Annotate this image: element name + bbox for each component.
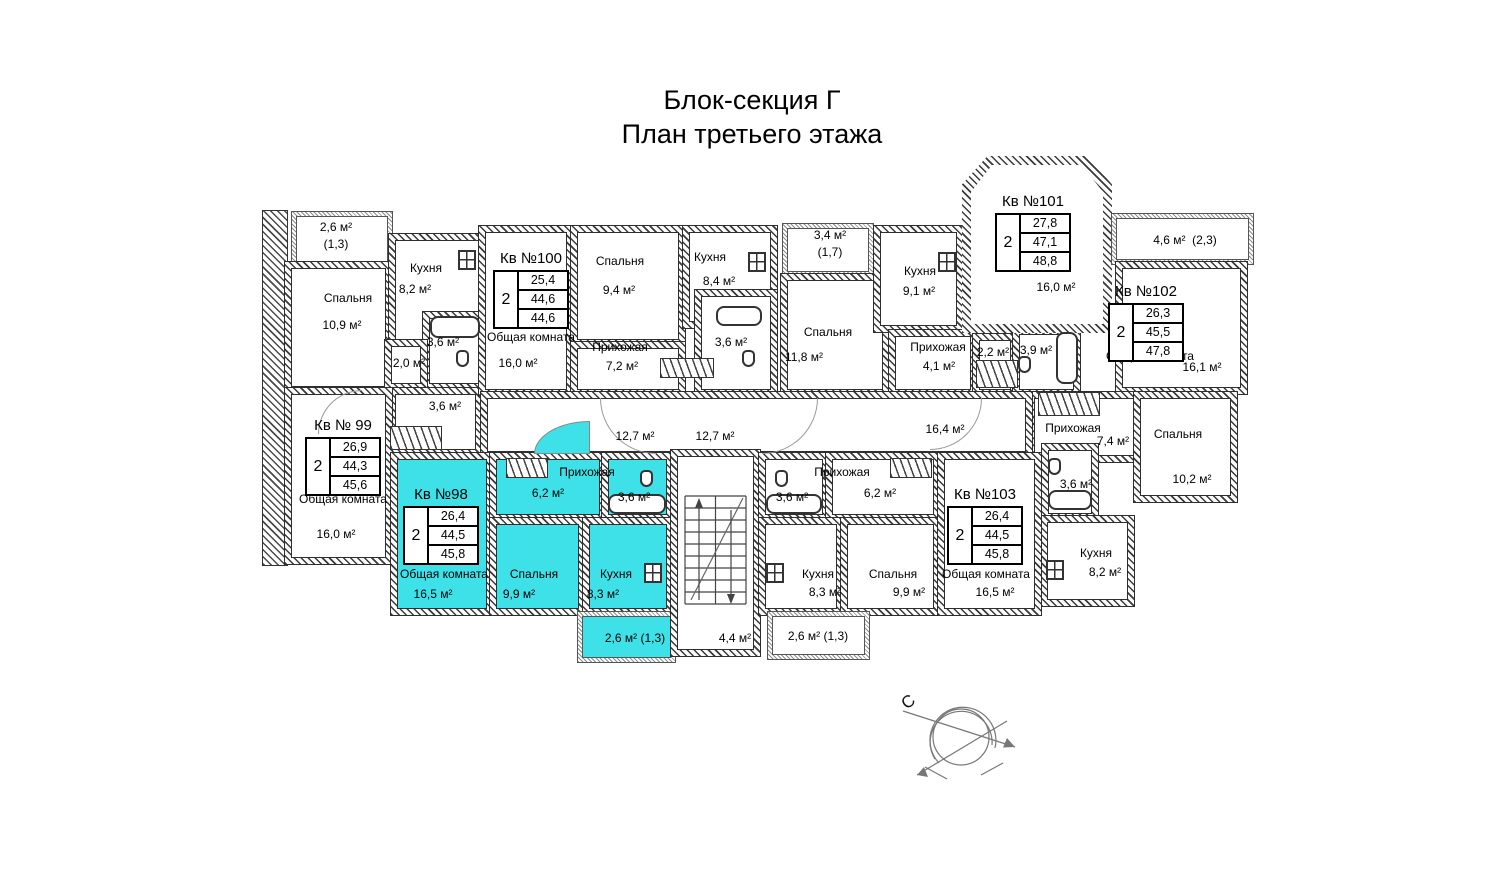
bathtub-icon-102	[1048, 490, 1092, 510]
label-corridor-right-area: 12,7 м²	[696, 428, 735, 445]
living-area: 26,4	[973, 508, 1021, 527]
wardrobe-icon-102	[1038, 392, 1100, 416]
rooms-count: 2	[495, 272, 519, 327]
apartment-number-101: Кв №101	[995, 193, 1071, 210]
label-balcony-99: 2,6 м²(1,3)	[320, 219, 352, 253]
label-kitchen-100-area: 8,4 м²	[703, 273, 735, 290]
wardrobe-icon-98	[506, 458, 548, 478]
toilet-icon-102	[1048, 458, 1061, 475]
label-common-98-area: 16,5 м²	[414, 586, 453, 603]
label-bedroom-103-name: Спальня	[869, 566, 917, 583]
label-kitchen-103-name: Кухня	[802, 566, 834, 583]
label-balcony-mid: 3,4 м²(1,7)	[814, 227, 846, 261]
label-hall-102-name: Прихожая	[1045, 420, 1101, 437]
label-kitchen-103-area: 8,3 м²	[809, 584, 841, 601]
wardrobe-icon-101	[976, 360, 1018, 388]
label-bedroom-98-name: Спальня	[510, 566, 558, 583]
label-bedroom-102-name: Спальня	[1154, 426, 1202, 443]
label-bedroom-103-area: 9,9 м²	[893, 584, 925, 601]
label-hall-98-area: 6,2 м²	[532, 485, 564, 502]
label-closet-22-area: 2,2 м²	[977, 344, 1009, 361]
wardrobe-icon-103	[890, 458, 932, 478]
apartment-number-100: Кв №100	[493, 250, 569, 267]
label-kitchen-99-name: Кухня	[410, 260, 442, 277]
label-hall-100-area: 7,2 м²	[606, 358, 638, 375]
label-bedroom-102-area: 10,2 м²	[1173, 471, 1212, 488]
label-common-103-area: 16,5 м²	[976, 584, 1015, 601]
label-bedroom-98-area: 9,9 м²	[503, 586, 535, 603]
label-hall-98-name: Прихожая	[559, 464, 615, 481]
label-common-98-name: Общая комната	[400, 566, 488, 583]
label-hall-102-area: 7,4 м²	[1097, 433, 1129, 450]
apartment-area-table-99: 2 26,9 44,3 45,6	[305, 437, 381, 496]
label-common-99-area: 16,0 м²	[317, 526, 356, 543]
rooms-count: 2	[405, 508, 429, 563]
label-hall-mid-area: 4,1 м²	[923, 358, 955, 375]
label-kitchen-mid-area: 9,1 м²	[903, 283, 935, 300]
apartment-area-table-103: 2 26,4 44,5 45,8	[947, 506, 1023, 565]
plan-title-line2: План третьего этажа	[622, 118, 883, 152]
toilet-icon-98	[640, 470, 653, 487]
apartment-card-99[interactable]: Кв № 99 2 26,9 44,3 45,6	[305, 417, 381, 496]
label-hall-103-name: Прихожая	[814, 464, 870, 481]
total-with-balcony: 48,8	[1021, 253, 1069, 270]
label-hall-99b-area: 3,6 м²	[429, 398, 461, 415]
label-kitchen-99-area: 8,2 м²	[399, 281, 431, 298]
label-bedroom-99-area: 10,9 м²	[323, 317, 362, 334]
compass-north-label: С	[897, 690, 918, 713]
apartment-card-103[interactable]: Кв №103 2 26,4 44,5 45,8	[947, 486, 1023, 565]
living-area: 25,4	[519, 272, 567, 291]
apartment-number-98: Кв №98	[403, 486, 479, 503]
bathtub-icon-101	[1056, 332, 1078, 384]
wardrobe-icon-99	[390, 426, 442, 450]
label-corridor-left-area: 12,7 м²	[616, 428, 655, 445]
stove-icon-100	[748, 252, 766, 272]
apartment-card-102[interactable]: Кв №102 2 26,3 45,5 47,8	[1108, 283, 1184, 362]
label-bedroom-100-area: 9,4 м²	[603, 282, 635, 299]
plan-title-line1: Блок-секция Г	[664, 84, 841, 118]
label-bedroom-99-name: Спальня	[324, 290, 372, 307]
label-bath-100-area: 3,6 м²	[715, 334, 747, 351]
label-room-101-area: 16,0 м²	[1037, 279, 1076, 296]
total-with-balcony: 47,8	[1134, 343, 1182, 360]
label-bath-102-area: 3,6 м²	[1060, 476, 1092, 493]
compass-icon: С	[895, 685, 1025, 790]
label-common-100-name: Общая комната	[487, 329, 575, 346]
rooms-count: 2	[997, 215, 1021, 270]
apartment-number-103: Кв №103	[947, 486, 1023, 503]
apartment-area-table-98: 2 26,4 44,5 45,8	[403, 506, 479, 565]
floor-plan: Блок-секция Г План третьего этажа	[0, 0, 1500, 875]
label-corridor-main-area: 16,4 м²	[926, 421, 965, 438]
label-hall-103-area: 6,2 м²	[864, 485, 896, 502]
total-area: 44,6	[519, 291, 567, 310]
total-with-balcony: 45,6	[331, 477, 379, 494]
total-area: 47,1	[1021, 234, 1069, 253]
bathtub-icon-100	[716, 306, 762, 326]
total-area: 45,5	[1134, 324, 1182, 343]
label-kitchen-102-name: Кухня	[1080, 545, 1112, 562]
label-bath-101-area: 3,9 м²	[1020, 342, 1052, 359]
living-area: 26,9	[331, 439, 379, 458]
stairs-icon	[671, 450, 760, 656]
label-hall-100-name: Прихожая	[592, 339, 648, 356]
toilet-icon-103	[775, 470, 788, 487]
total-with-balcony: 45,8	[429, 546, 477, 563]
living-area: 27,8	[1021, 215, 1069, 234]
total-with-balcony: 45,8	[973, 546, 1021, 563]
label-kitchen-mid-name: Кухня	[904, 263, 936, 280]
wardrobe-icon-100	[660, 358, 714, 378]
apartment-area-table-101: 2 27,8 47,1 48,8	[995, 213, 1071, 272]
label-hall-mid-name: Прихожая	[910, 339, 966, 356]
stove-icon-99	[458, 250, 476, 270]
label-balcony-98: 2,6 м² (1,3)	[605, 630, 665, 647]
label-bedroom-100-name: Спальня	[596, 253, 644, 270]
rooms-count: 2	[949, 508, 973, 563]
apartment-area-table-102: 2 26,3 45,5 47,8	[1108, 303, 1184, 362]
toilet-icon-99	[456, 350, 469, 367]
label-bedroom-mid-area: 11,8 м²	[785, 349, 823, 366]
rooms-count: 2	[1110, 305, 1134, 360]
label-bedroom-mid-name: Спальня	[804, 324, 852, 341]
apartment-number-102: Кв №102	[1108, 283, 1184, 300]
stove-icon-98	[644, 563, 662, 583]
label-bath-99-area: 3,6 м²	[427, 334, 459, 351]
living-area: 26,4	[429, 508, 477, 527]
label-hall-99a-area: 2,0 м²	[393, 355, 425, 372]
apartment-area-table-100: 2 25,4 44,6 44,6	[493, 270, 569, 329]
label-common-100-area: 16,0 м²	[499, 355, 538, 372]
stove-icon-103	[766, 563, 784, 583]
label-common-102-area: 16,1 м²	[1183, 359, 1222, 376]
stove-icon-mid	[938, 252, 956, 272]
label-common-103-name: Общая комната	[942, 566, 1030, 583]
label-kitchen-98-area: 8,3 м²	[587, 586, 619, 603]
label-kitchen-102-area: 8,2 м²	[1089, 564, 1121, 581]
total-area: 44,3	[331, 458, 379, 477]
apartment-card-98[interactable]: Кв №98 2 26,4 44,5 45,8	[403, 486, 479, 565]
label-balcony-103: 2,6 м² (1,3)	[788, 628, 848, 645]
label-bath-103-area: 3,6 м²	[776, 489, 808, 506]
toilet-icon-100	[742, 350, 755, 367]
label-bath-98-area: 3,6 м²	[618, 489, 650, 506]
label-balcony-102: 4,6 м² (2,3)	[1153, 232, 1217, 249]
apartment-number-99: Кв № 99	[305, 417, 381, 434]
total-with-balcony: 44,6	[519, 310, 567, 327]
label-kitchen-98-name: Кухня	[600, 566, 632, 583]
living-area: 26,3	[1134, 305, 1182, 324]
apartment-card-101[interactable]: Кв №101 2 27,8 47,1 48,8	[995, 193, 1071, 272]
apartment-card-100[interactable]: Кв №100 2 25,4 44,6 44,6	[493, 250, 569, 329]
label-stairwell-area: 4,4 м²	[719, 630, 751, 647]
label-kitchen-100-name: Кухня	[694, 249, 726, 266]
total-area: 44,5	[429, 527, 477, 546]
stove-icon-102	[1046, 560, 1064, 580]
total-area: 44,5	[973, 527, 1021, 546]
rooms-count: 2	[307, 439, 331, 494]
